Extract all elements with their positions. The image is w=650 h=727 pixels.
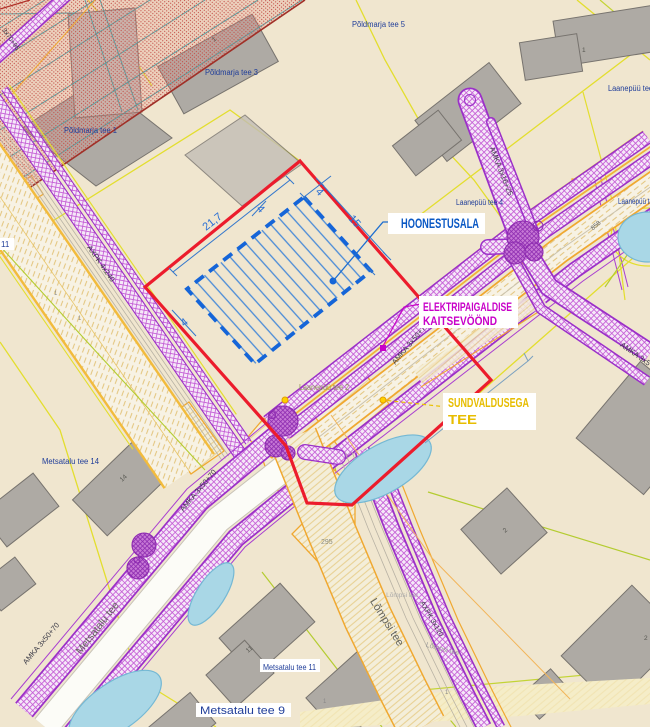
svg-text:295: 295 <box>321 539 333 546</box>
svg-text:SUNDVALDUSEGA: SUNDVALDUSEGA <box>448 396 529 410</box>
svg-text:Metsatalu tee 9: Metsatalu tee 9 <box>200 705 285 717</box>
svg-text:1: 1 <box>582 47 586 54</box>
svg-text:KAITSEVÖÖND: KAITSEVÖÖND <box>423 313 497 328</box>
svg-text:11: 11 <box>1 240 10 249</box>
svg-text:HOONESTUSALA: HOONESTUSALA <box>401 216 479 231</box>
svg-text:TEE: TEE <box>448 413 477 427</box>
svg-text:Laanepüü te: Laanepüü te <box>618 197 650 206</box>
svg-text:Põldmarja tee 5: Põldmarja tee 5 <box>352 20 406 29</box>
svg-text:ELEKTRIPAIGALDISE: ELEKTRIPAIGALDISE <box>423 300 512 314</box>
svg-text:Põldmarja tee 3: Põldmarja tee 3 <box>205 68 259 77</box>
svg-text:Põldmarja tee 1: Põldmarja tee 1 <box>64 126 118 135</box>
svg-text:Metsatalu tee 14: Metsatalu tee 14 <box>42 457 100 466</box>
svg-text:Laanepüü tee: Laanepüü tee <box>608 84 650 93</box>
svg-text:Metsatalu tee 11: Metsatalu tee 11 <box>263 662 316 672</box>
svg-text:Laanepüü tee 4: Laanepüü tee 4 <box>456 198 503 207</box>
svg-text:Lõmpsi tee: Lõmpsi tee <box>386 592 418 599</box>
svg-text:2: 2 <box>644 635 648 642</box>
svg-text:Laanepüü tee 2: Laanepüü tee 2 <box>299 383 349 392</box>
